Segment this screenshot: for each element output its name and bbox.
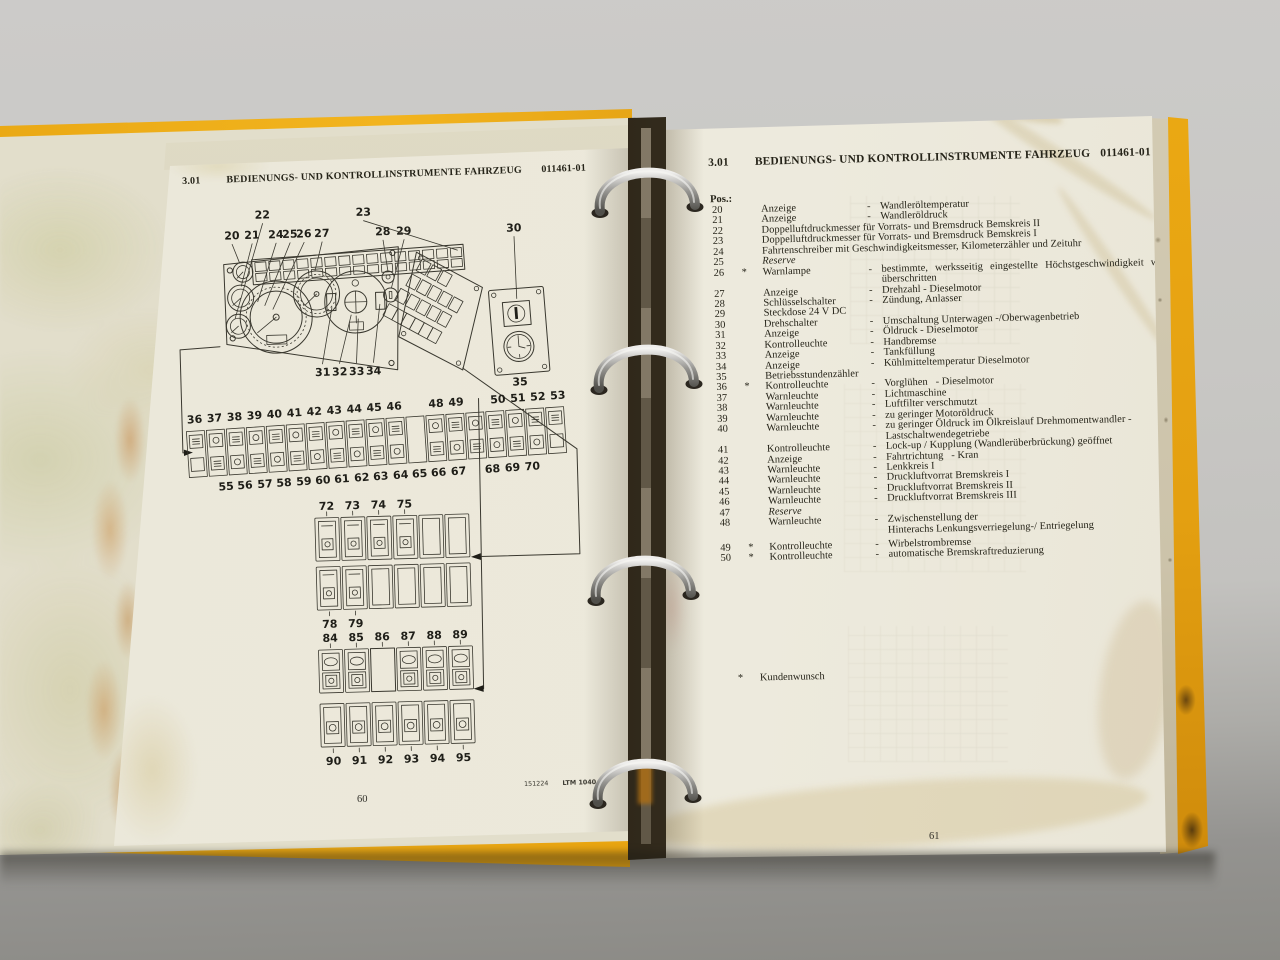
svg-text:57: 57: [257, 477, 273, 491]
customer-option-star: [745, 424, 766, 435]
positions-list-label: Pos.:: [710, 194, 732, 206]
svg-text:79: 79: [348, 617, 364, 630]
customer-option-star: [747, 507, 768, 518]
svg-text:67: 67: [451, 464, 467, 478]
document-id: 011461-01: [541, 163, 586, 175]
separator-dash: -: [873, 442, 886, 453]
svg-text:62: 62: [354, 471, 370, 485]
svg-text:45: 45: [366, 401, 382, 415]
svg-text:46: 46: [386, 399, 402, 413]
svg-text:89: 89: [452, 628, 468, 641]
separator-dash: [1040, 219, 1053, 230]
svg-text:48: 48: [428, 397, 444, 411]
svg-text:90: 90: [326, 755, 342, 768]
svg-text:56: 56: [237, 478, 253, 492]
right-gutter-shadow: [660, 118, 704, 858]
customer-option-star: [746, 466, 767, 477]
bleed-through-ghost: [848, 626, 1008, 762]
customer-option-star: [748, 518, 769, 529]
customer-option-star: [745, 393, 766, 404]
svg-text:91: 91: [352, 754, 368, 767]
svg-text:70: 70: [524, 459, 540, 473]
svg-text:63: 63: [373, 469, 389, 483]
pos-number: 26: [714, 268, 742, 279]
separator-dash: -: [872, 421, 885, 432]
svg-text:94: 94: [430, 752, 446, 765]
section-number: 3.01: [182, 175, 201, 187]
print-code: 151224: [524, 779, 549, 788]
page-stain: [646, 765, 1149, 864]
customer-option-star: [740, 215, 761, 226]
svg-text:39: 39: [246, 409, 262, 423]
svg-text:75: 75: [397, 497, 413, 510]
customer-option-star: [743, 340, 764, 351]
svg-text:58: 58: [276, 476, 292, 490]
customer-option-star: [743, 309, 764, 320]
svg-text:64: 64: [393, 468, 409, 482]
separator-dash: [869, 275, 882, 286]
svg-text:50: 50: [490, 392, 506, 406]
tachograph-gauge: [239, 280, 313, 354]
svg-text:86: 86: [374, 630, 390, 643]
diagram-mid-callouts: 31 32 33 34: [315, 364, 382, 379]
svg-text:44: 44: [346, 402, 362, 416]
svg-text:60: 60: [315, 473, 331, 487]
positions-list: 20 Anzeige - Wandleröltemperatur 21 Anze…: [712, 195, 1159, 564]
spine-glint: [638, 762, 652, 804]
footnote-text: Kundenwunsch: [760, 671, 825, 683]
svg-text:88: 88: [426, 629, 442, 642]
page-title: BEDIENUNGS- UND KONTROLLINSTRUMENTE FAHR…: [755, 148, 1091, 168]
separator-dash: -: [875, 515, 888, 526]
switch-group-4: 90 91 92 93 94 95: [320, 700, 476, 768]
customer-option-star: [743, 320, 764, 331]
left-gutter-shadow: [584, 145, 632, 835]
svg-text:34: 34: [366, 364, 382, 377]
key-icon: [514, 307, 518, 319]
svg-text:31: 31: [315, 366, 331, 379]
separator-dash: -: [871, 358, 884, 369]
svg-text:53: 53: [550, 388, 566, 402]
customer-option-star: [744, 361, 765, 372]
svg-text:40: 40: [266, 407, 282, 421]
separator-dash: -: [868, 265, 881, 276]
pos-number: [714, 278, 742, 289]
svg-text:51: 51: [510, 391, 526, 405]
spine-metal-bar: [641, 128, 651, 844]
svg-text:68: 68: [484, 462, 500, 476]
clock-panel: [488, 286, 550, 375]
svg-text:49: 49: [448, 395, 464, 409]
customer-option-star: [747, 476, 768, 487]
switch-group-2: 78 79: [316, 563, 472, 631]
svg-text:85: 85: [348, 631, 364, 644]
customer-option-star: [744, 351, 765, 362]
customer-option-star: [742, 288, 763, 299]
customer-option-star: [746, 445, 767, 456]
svg-text:73: 73: [345, 499, 361, 512]
switch-group-1: 72 73 74 75: [314, 496, 470, 561]
customer-option-star: [740, 205, 761, 216]
svg-text:42: 42: [306, 405, 322, 419]
svg-text:41: 41: [286, 406, 302, 420]
page-number-left: 60: [357, 794, 368, 805]
separator-dash: [1081, 238, 1094, 249]
customer-option-star: [741, 236, 762, 247]
footnote-star: *: [738, 672, 760, 683]
svg-text:59: 59: [296, 475, 312, 489]
svg-text:22: 22: [254, 208, 270, 221]
svg-text:66: 66: [431, 466, 447, 480]
customer-option-star: [743, 330, 764, 341]
binder-shadow: [0, 852, 1215, 886]
svg-text:29: 29: [396, 224, 412, 237]
component-name: [769, 526, 875, 539]
customer-option-star: [747, 487, 768, 498]
svg-text:38: 38: [226, 410, 242, 424]
pos-number: 50: [721, 554, 749, 565]
svg-text:61: 61: [334, 472, 350, 486]
switch-group-3: 84 85 86 87 88 89: [318, 628, 474, 693]
pos-number: 41: [718, 445, 746, 456]
svg-text:87: 87: [400, 629, 416, 642]
indicator-lamp-strip: 36 37 38 39 40 41 42 43 44 45 46 48 49 5…: [185, 388, 570, 495]
svg-text:43: 43: [326, 403, 342, 417]
customer-option-star: [745, 413, 766, 424]
svg-text:74: 74: [371, 498, 387, 511]
customer-option-star: [741, 226, 762, 237]
separator-dash: [875, 525, 888, 536]
customer-option-star: [742, 278, 763, 289]
svg-text:69: 69: [504, 461, 520, 475]
svg-text:92: 92: [378, 753, 394, 766]
svg-text:78: 78: [322, 618, 338, 631]
page-stain: [905, 73, 1065, 131]
diagram-top-callouts: 20 21 22 24 25 26 27 23 28 29 30: [223, 201, 521, 242]
document-id: 011461-01: [1100, 146, 1151, 159]
customer-option-star: [742, 299, 763, 310]
svg-text:65: 65: [412, 467, 428, 481]
svg-text:93: 93: [404, 752, 420, 765]
svg-text:27: 27: [314, 227, 330, 240]
customer-option-star: [746, 455, 767, 466]
svg-text:32: 32: [332, 365, 348, 378]
svg-text:84: 84: [322, 632, 338, 645]
customer-option-star: *: [742, 267, 763, 278]
svg-text:52: 52: [530, 390, 546, 404]
customer-option-star: *: [744, 382, 765, 393]
customer-option-star: [745, 403, 766, 414]
svg-text:72: 72: [319, 500, 335, 513]
footnote: * Kundenwunsch: [738, 671, 825, 684]
svg-text:20: 20: [224, 229, 240, 242]
svg-text:36: 36: [187, 413, 203, 427]
separator-dash: -: [875, 550, 888, 561]
svg-text:26: 26: [296, 227, 312, 240]
right-connector-line-2: [471, 399, 487, 689]
pos-number: 48: [720, 518, 748, 529]
customer-option-star: [746, 434, 767, 445]
clock-callout-label: 35: [512, 375, 528, 388]
customer-option-star: [748, 528, 769, 539]
svg-text:23: 23: [355, 205, 371, 218]
photo-scene: 3.01 BEDIENUNGS- UND KONTROLLINSTRUMENTE…: [0, 0, 1280, 960]
center-cluster: [324, 270, 388, 334]
pos-number: 40: [717, 424, 745, 435]
svg-text:95: 95: [456, 751, 472, 764]
svg-text:33: 33: [349, 365, 365, 378]
separator-dash: -: [869, 296, 882, 307]
page-number-right: 61: [929, 831, 940, 842]
instrument-panel-diagram: 20 21 22 24 25 26 27 23 28 29 30: [172, 196, 621, 808]
customer-option-star: [747, 497, 768, 508]
pos-number: [720, 529, 748, 540]
svg-text:55: 55: [218, 480, 234, 494]
customer-option-star: *: [749, 553, 770, 564]
svg-text:37: 37: [206, 411, 222, 425]
svg-text:21: 21: [244, 229, 260, 242]
section-number: 3.01: [708, 156, 729, 169]
customer-option-star: [741, 247, 762, 258]
svg-text:30: 30: [506, 221, 522, 234]
separator-dash: -: [874, 494, 887, 505]
